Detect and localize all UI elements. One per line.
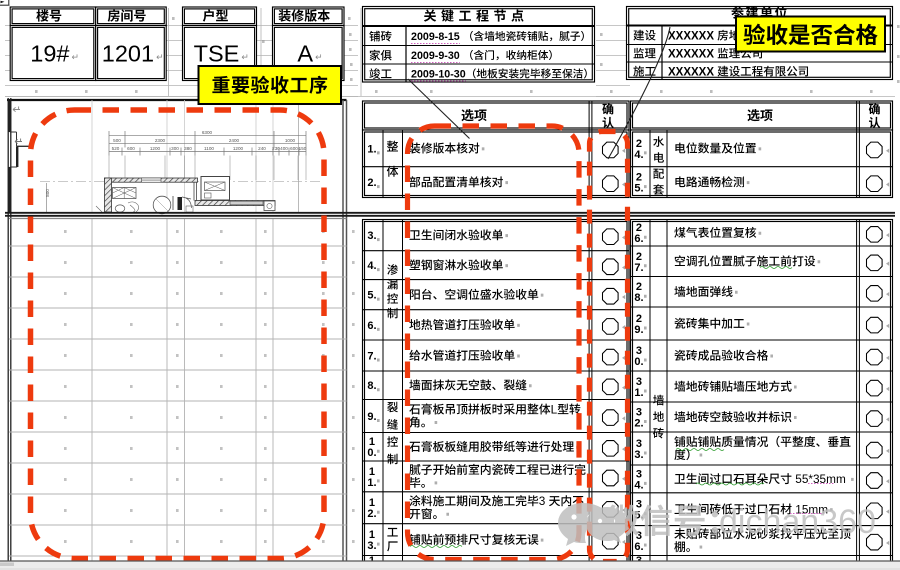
svg-text:2.: 2. <box>634 418 643 430</box>
svg-text:230: 230 <box>272 146 280 151</box>
svg-text:4.: 4. <box>634 149 643 161</box>
svg-text:1000: 1000 <box>285 138 296 143</box>
svg-text:1.: 1. <box>634 387 643 399</box>
svg-text:600: 600 <box>290 146 298 151</box>
svg-text:4.: 4. <box>367 260 376 272</box>
svg-text:400: 400 <box>280 146 288 151</box>
svg-text:9.: 9. <box>367 411 376 423</box>
svg-text:↵: ↵ <box>241 52 249 62</box>
svg-text:500: 500 <box>113 138 121 143</box>
svg-text:5.: 5. <box>367 290 376 302</box>
svg-text:8.: 8. <box>367 380 376 392</box>
svg-text:2009-9-30: 2009-9-30 <box>411 50 463 62</box>
svg-text:5.: 5. <box>634 183 643 195</box>
svg-text:2009-10-30: 2009-10-30 <box>411 69 466 81</box>
svg-text:6.: 6. <box>367 320 376 332</box>
svg-text:2.: 2. <box>367 508 376 520</box>
svg-text:800: 800 <box>45 189 50 197</box>
svg-text:A: A <box>297 41 313 67</box>
svg-text:300: 300 <box>171 146 179 151</box>
svg-text:6.: 6. <box>634 233 643 245</box>
svg-text:XXXXXX: XXXXXX <box>668 67 717 79</box>
svg-text:0.: 0. <box>634 356 643 368</box>
svg-text:7.: 7. <box>634 262 643 274</box>
svg-text:2.: 2. <box>367 177 376 189</box>
svg-text:3.: 3. <box>367 540 376 552</box>
svg-text:↵: ↵ <box>315 52 323 62</box>
svg-text:9.: 9. <box>634 324 643 336</box>
svg-text:3: 3 <box>539 494 549 508</box>
svg-text:dichan360: dichan360 <box>719 503 876 541</box>
svg-text:520: 520 <box>112 146 120 151</box>
svg-text:7.: 7. <box>367 351 376 363</box>
svg-text:3.: 3. <box>367 230 376 242</box>
svg-text:6300: 6300 <box>202 130 213 135</box>
svg-text:600: 600 <box>127 146 135 151</box>
svg-text:3.: 3. <box>634 449 643 461</box>
svg-text:TSE: TSE <box>194 41 240 67</box>
svg-text:150: 150 <box>299 146 307 151</box>
svg-text:XXXXXX: XXXXXX <box>668 49 717 61</box>
svg-text:1.: 1. <box>367 477 376 489</box>
svg-text:1100: 1100 <box>204 146 214 151</box>
svg-text:XXXXXX: XXXXXX <box>668 31 717 43</box>
svg-text:↵: ↵ <box>156 52 164 62</box>
svg-text:L: L <box>551 403 558 417</box>
svg-text:19#: 19# <box>30 41 69 67</box>
svg-text:380: 380 <box>184 146 192 151</box>
svg-text:8.: 8. <box>634 292 643 304</box>
svg-text:4.: 4. <box>634 479 643 491</box>
svg-text:1200: 1200 <box>233 146 244 151</box>
svg-text:1201: 1201 <box>102 41 154 67</box>
svg-text:2400: 2400 <box>229 138 240 143</box>
svg-text:2009-8-15: 2009-8-15 <box>411 31 463 43</box>
svg-text:1200: 1200 <box>150 146 161 151</box>
svg-text:240: 240 <box>258 146 266 151</box>
svg-text:2300: 2300 <box>155 138 166 143</box>
svg-text:↵: ↵ <box>72 52 80 62</box>
svg-text:6.: 6. <box>634 541 643 553</box>
svg-text:1.: 1. <box>367 143 376 155</box>
svg-text:0.: 0. <box>367 447 376 459</box>
